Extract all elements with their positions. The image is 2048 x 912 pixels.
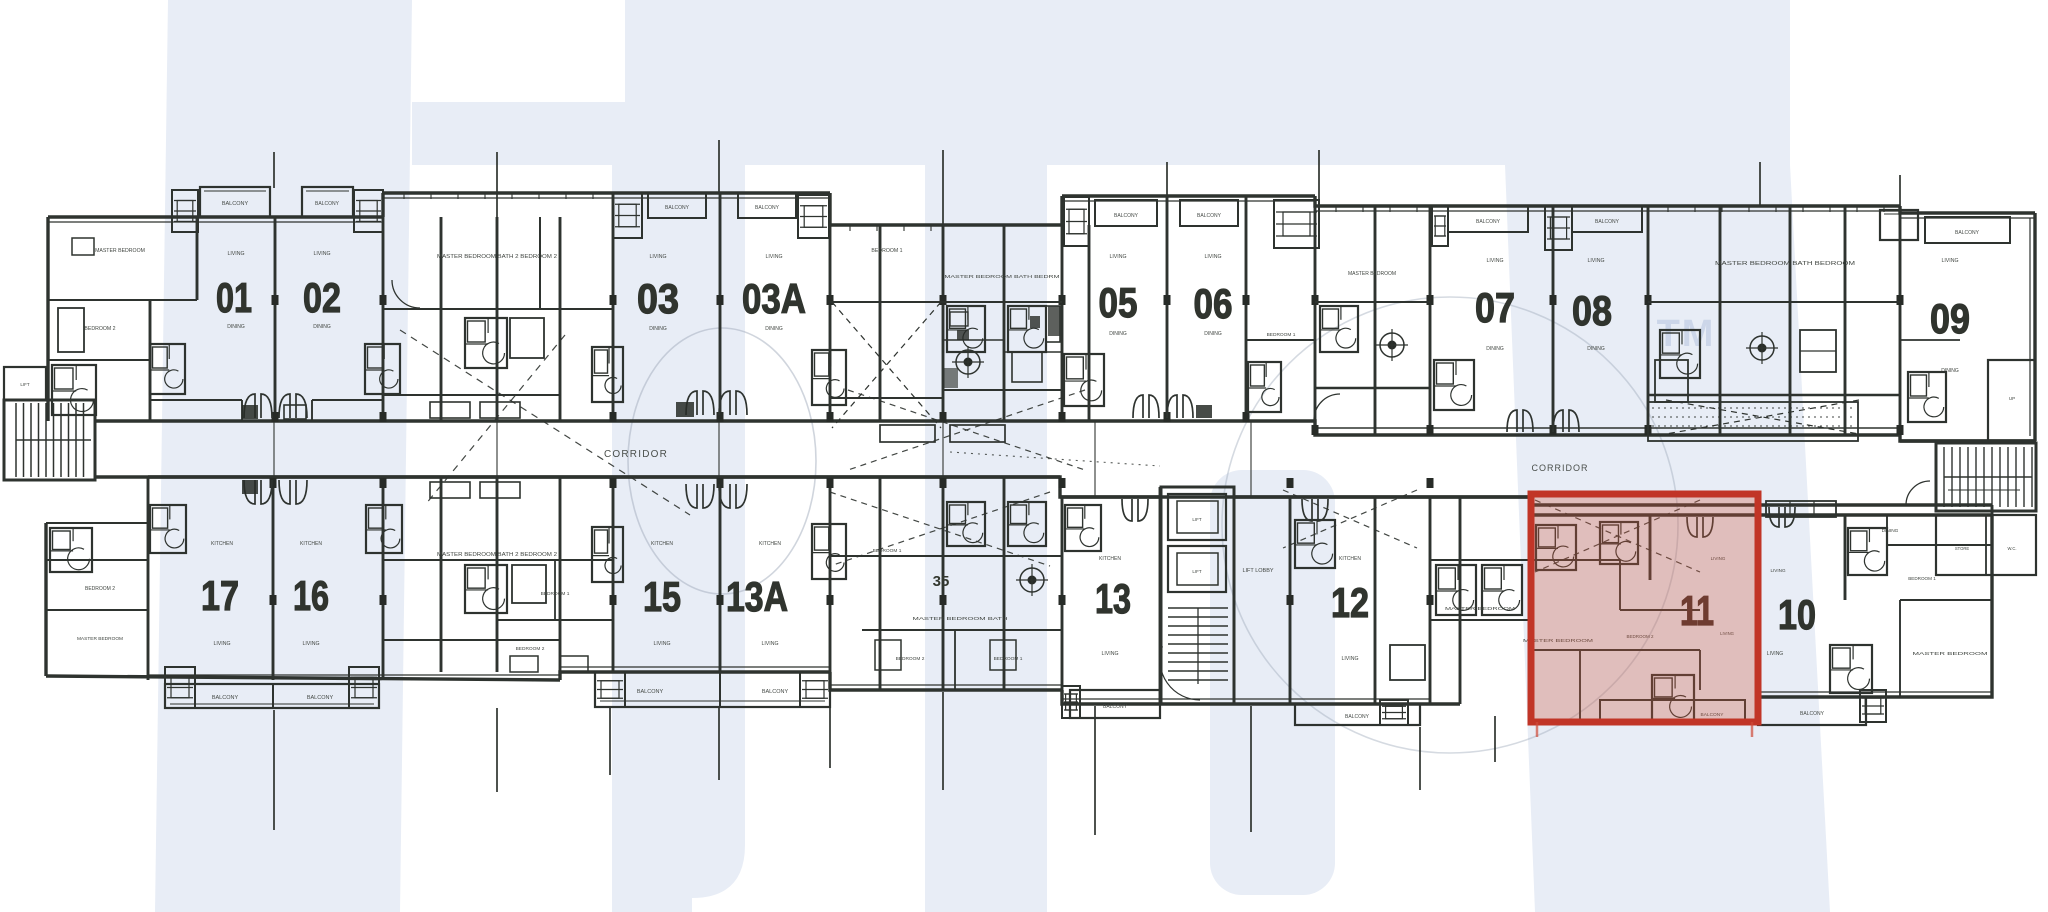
svg-text:BALCONY: BALCONY [1345, 714, 1370, 720]
svg-text:BEDROOM 2: BEDROOM 2 [84, 326, 115, 332]
svg-text:MASTER BEDROOM BATH BEDROOM: MASTER BEDROOM BATH BEDROOM [1715, 261, 1855, 267]
svg-text:LIVING: LIVING [1941, 258, 1958, 264]
svg-text:13: 13 [1095, 575, 1131, 622]
svg-text:BEDROOM 2: BEDROOM 2 [85, 586, 115, 592]
svg-text:UP: UP [2009, 396, 2015, 401]
svg-text:17: 17 [201, 572, 239, 619]
svg-text:BALCONY: BALCONY [665, 205, 690, 211]
svg-text:DINING: DINING [765, 326, 783, 332]
svg-text:LIVING: LIVING [313, 251, 330, 257]
svg-text:09: 09 [1930, 295, 1970, 342]
svg-text:03A: 03A [742, 275, 806, 322]
svg-text:BEDROOM 1: BEDROOM 1 [873, 548, 902, 554]
svg-text:MASTER BEDROOM BATH 2 BEDROO: MASTER BEDROOM BATH 2 BEDROOM 2 [437, 552, 557, 558]
svg-text:BALCONY: BALCONY [762, 689, 789, 695]
svg-text:TM: TM [1657, 313, 1716, 355]
svg-text:BALCONY: BALCONY [755, 205, 780, 211]
svg-text:BALCONY: BALCONY [315, 201, 340, 207]
svg-text:02: 02 [303, 274, 341, 321]
svg-text:MASTER BEDROOM: MASTER BEDROOM [1913, 651, 1988, 656]
svg-text:MASTER BEDROOM: MASTER BEDROOM [77, 636, 123, 642]
svg-text:BEDROOM 1: BEDROOM 1 [1908, 576, 1936, 581]
svg-text:LIVING: LIVING [761, 641, 778, 647]
svg-text:BEDROOM 1: BEDROOM 1 [1267, 332, 1296, 338]
svg-text:10: 10 [1778, 591, 1816, 638]
svg-text:DINING: DINING [1204, 331, 1222, 337]
svg-text:KITCHEN: KITCHEN [1339, 556, 1361, 562]
svg-text:BALCONY: BALCONY [222, 201, 249, 207]
svg-text:MASTER BEDROOM BATH: MASTER BEDROOM BATH [913, 616, 1009, 622]
svg-text:KITCHEN: KITCHEN [211, 541, 233, 547]
svg-text:06: 06 [1194, 280, 1233, 327]
svg-text:DINING: DINING [313, 324, 331, 330]
svg-text:13A: 13A [726, 573, 788, 620]
svg-text:LIFT: LIFT [1192, 517, 1202, 522]
svg-text:BALCONY: BALCONY [212, 695, 239, 701]
svg-text:BEDROOM 2: BEDROOM 2 [896, 656, 925, 662]
svg-text:BALCONY: BALCONY [1476, 219, 1501, 225]
svg-text:03: 03 [637, 275, 679, 322]
svg-text:DINING: DINING [649, 326, 667, 332]
svg-text:LIVING: LIVING [1204, 254, 1221, 260]
svg-text:LIFT: LIFT [20, 382, 30, 387]
svg-text:BALCONY: BALCONY [1595, 219, 1620, 225]
svg-text:16: 16 [293, 572, 329, 619]
svg-text:LIVING: LIVING [1770, 568, 1785, 573]
svg-text:W.C.: W.C. [2007, 546, 2016, 551]
svg-text:BALCONY: BALCONY [1103, 704, 1128, 710]
svg-text:MASTER BEDROOM BATH 2 BEDROO: MASTER BEDROOM BATH 2 BEDROOM 2 [437, 254, 557, 260]
svg-text:08: 08 [1572, 287, 1612, 334]
svg-text:BALCONY: BALCONY [1197, 213, 1222, 219]
svg-text:CORRIDOR: CORRIDOR [1532, 463, 1589, 473]
svg-text:15: 15 [643, 573, 681, 620]
svg-text:MASTER BEDROOM: MASTER BEDROOM [1348, 271, 1396, 277]
svg-text:BALCONY: BALCONY [1114, 213, 1139, 219]
svg-text:LIVING: LIVING [1109, 254, 1126, 260]
svg-text:LIVING: LIVING [653, 641, 670, 647]
svg-text:BEDROOM 1: BEDROOM 1 [994, 656, 1023, 662]
svg-text:BEDROOM 1: BEDROOM 1 [541, 591, 570, 597]
svg-text:BALCONY: BALCONY [637, 689, 664, 695]
svg-text:BALCONY: BALCONY [1955, 230, 1980, 236]
svg-text:KITCHEN: KITCHEN [759, 541, 781, 547]
svg-text:MASTER BEDROOM: MASTER BEDROOM [95, 248, 145, 254]
svg-text:DINING: DINING [227, 324, 245, 330]
svg-text:01: 01 [216, 274, 252, 321]
svg-text:BEDROOM 1: BEDROOM 1 [871, 248, 902, 254]
svg-text:05: 05 [1099, 279, 1138, 326]
svg-text:LIVING: LIVING [1486, 258, 1503, 264]
svg-text:LIVING: LIVING [302, 641, 319, 647]
svg-text:LIFT: LIFT [1192, 569, 1202, 574]
svg-text:35: 35 [933, 573, 950, 590]
svg-text:KITCHEN: KITCHEN [300, 541, 322, 547]
svg-text:BALCONY: BALCONY [1800, 711, 1825, 717]
svg-text:LIVING: LIVING [649, 254, 666, 260]
svg-text:12: 12 [1331, 579, 1369, 626]
svg-text:KITCHEN: KITCHEN [651, 541, 673, 547]
svg-text:KITCHEN: KITCHEN [1099, 556, 1121, 562]
svg-text:LIVING: LIVING [1101, 651, 1118, 657]
svg-text:DINING: DINING [1486, 346, 1504, 352]
svg-text:LIFT LOBBY: LIFT LOBBY [1242, 568, 1273, 574]
svg-text:DINING: DINING [1587, 346, 1605, 352]
svg-text:MASTER BEDROOM: MASTER BEDROOM [1445, 606, 1515, 611]
svg-text:BALCONY: BALCONY [307, 695, 334, 701]
svg-text:LIVING: LIVING [1767, 651, 1784, 657]
svg-text:DINING: DINING [1109, 331, 1127, 337]
svg-text:LIVING: LIVING [227, 251, 244, 257]
svg-text:LIVING: LIVING [213, 641, 230, 647]
svg-text:LIVING: LIVING [1587, 258, 1604, 264]
svg-text:CORRIDOR: CORRIDOR [604, 449, 668, 460]
svg-text:LIVING: LIVING [765, 254, 782, 260]
svg-text:STORE: STORE [1955, 546, 1970, 551]
svg-text:MASTER BEDROOM BATH BEDRM: MASTER BEDROOM BATH BEDRM [945, 274, 1060, 280]
svg-text:07: 07 [1475, 284, 1515, 331]
svg-text:LIVING: LIVING [1341, 656, 1358, 662]
svg-text:BEDROOM 2: BEDROOM 2 [516, 646, 545, 652]
